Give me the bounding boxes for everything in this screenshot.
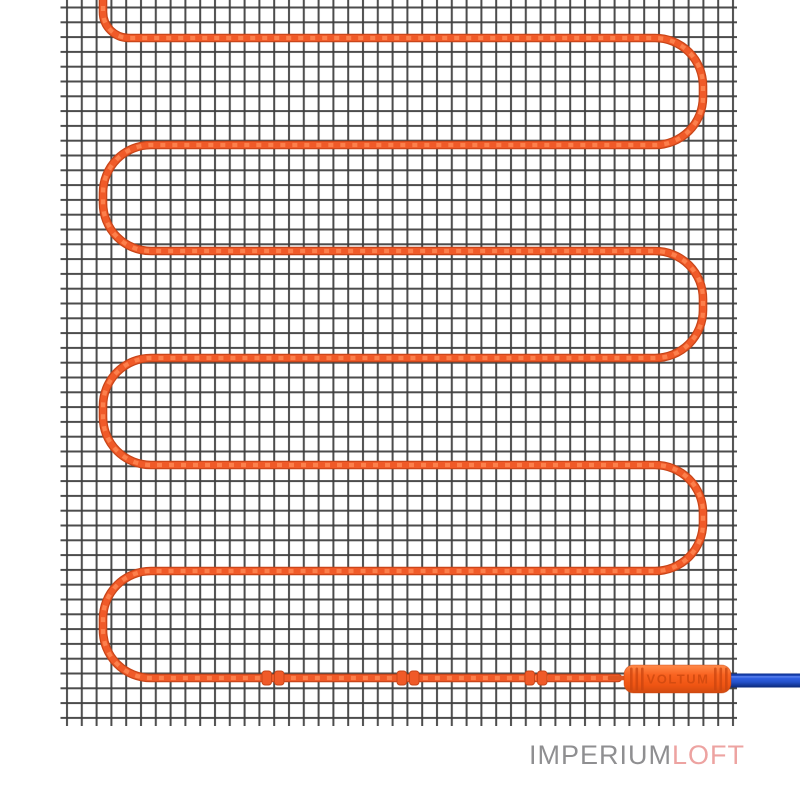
power-cord [726, 674, 800, 688]
watermark-accent: LOFT [672, 740, 745, 770]
connector-brand-label: VOLTUM [647, 672, 710, 687]
heating-mat-figure: VOLTUM [0, 0, 800, 800]
product-photo: VOLTUM IMPERIUMLOFT [0, 0, 800, 800]
watermark-primary: IMPERIUM [529, 740, 672, 770]
brand-watermark: IMPERIUMLOFT [529, 740, 745, 771]
cable-connector: VOLTUM [624, 665, 731, 693]
mesh-grid [61, 0, 738, 726]
